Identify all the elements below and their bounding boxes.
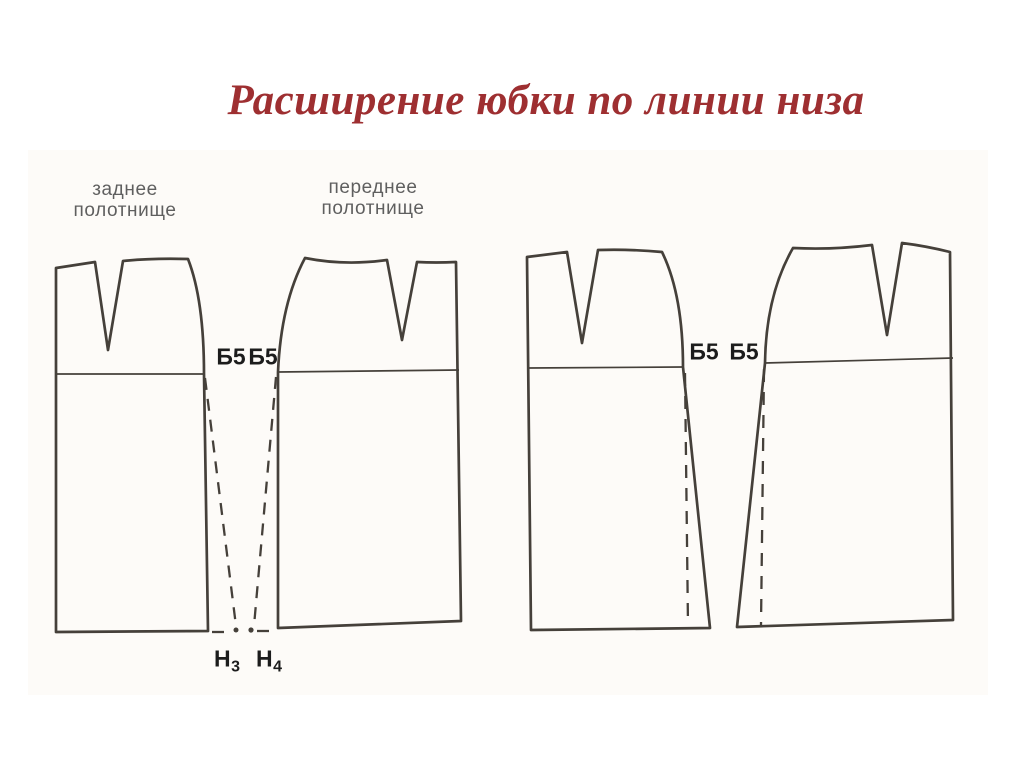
result-front-panel-hip-line: [765, 358, 953, 363]
hip-point-label-b5: Б5: [248, 344, 277, 371]
construction-front-panel-outline: [278, 258, 461, 628]
construction-front-new-side-seam-dashed: [254, 377, 276, 626]
result-front-panel-outline: [737, 243, 953, 627]
h3-base: Н: [214, 646, 231, 672]
result-back-panel-hip-line: [529, 367, 683, 368]
slide: Расширение юбки по линии низа заднее пол…: [0, 0, 1024, 767]
construction-front-panel-hip-line: [278, 370, 459, 372]
point-h3-dot: [234, 628, 239, 633]
hem-point-label-h4: Н4: [256, 646, 282, 673]
h4-subscript: 4: [273, 659, 282, 676]
result-back-panel-outline: [527, 250, 710, 630]
h3-subscript: 3: [231, 659, 240, 676]
construction-back-panel-outline: [56, 259, 208, 632]
h4-base: Н: [256, 646, 273, 672]
hip-point-label-b5: Б5: [729, 339, 758, 366]
construction-back-new-side-seam-dashed: [205, 378, 236, 626]
point-h4-dot: [248, 627, 253, 632]
hem-point-label-h3: Н3: [214, 646, 240, 673]
hip-point-label-b5: Б5: [216, 344, 245, 371]
pattern-diagram: [0, 0, 1024, 767]
hip-point-label-b5: Б5: [689, 339, 718, 366]
